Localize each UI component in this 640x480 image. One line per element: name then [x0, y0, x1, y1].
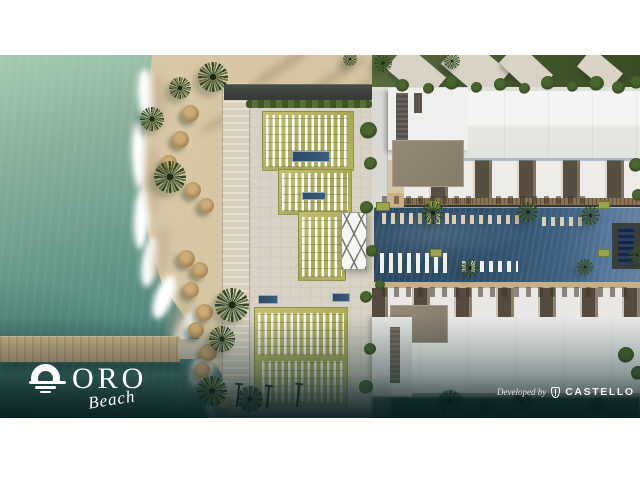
deck-loungers: [496, 196, 588, 204]
beach-umbrella: [199, 198, 214, 213]
shrub: [567, 81, 578, 92]
beach-umbrella: [183, 282, 199, 298]
shrub: [364, 157, 377, 170]
shrub: [360, 201, 373, 214]
shrub: [631, 366, 640, 380]
pool-green-mat: [598, 201, 610, 209]
pool-green-mat: [598, 249, 610, 257]
shrub: [541, 76, 555, 90]
palm-tree: [581, 206, 600, 225]
palm-tree: [461, 259, 479, 277]
palm-tree: [518, 202, 538, 222]
beach-umbrella: [192, 262, 208, 278]
shrub: [471, 82, 482, 93]
beach-umbrella: [185, 182, 201, 198]
plunge-pool: [258, 295, 278, 304]
pool-green-mat: [430, 249, 442, 257]
oro-beach-logo: ORO Beach: [28, 360, 198, 416]
canopy-truss: [342, 213, 366, 269]
palm-tree: [169, 77, 191, 99]
pool-green-mat: [376, 202, 390, 211]
oro-sun-waves-icon: [28, 364, 68, 404]
wooden-pier: [0, 336, 180, 362]
palm-tree: [422, 202, 444, 224]
shrub: [629, 158, 640, 172]
shrub: [494, 78, 507, 91]
palm-tree: [577, 259, 593, 275]
shrub: [618, 347, 634, 363]
palm-tree: [438, 390, 462, 414]
shrub: [423, 83, 434, 94]
palm-tree: [197, 376, 227, 406]
shrub: [589, 76, 604, 91]
palm-tree: [215, 288, 249, 322]
shrub: [630, 76, 640, 89]
in-pool-loungers: [452, 215, 524, 224]
castello-crest-icon: [551, 387, 560, 398]
beach-boardwalk: [222, 83, 250, 418]
shrub: [612, 81, 625, 94]
sun-lounger-rows: [302, 217, 342, 277]
palm-tree: [629, 247, 640, 263]
aerial-render-scene: ORO Beach Developed by CASTELLO: [0, 55, 640, 418]
hedge-row: [246, 100, 372, 108]
bottom-letterbox: [0, 418, 640, 480]
event-canopy: [341, 212, 367, 270]
shrub: [366, 245, 378, 257]
palm-tree: [478, 398, 496, 416]
beach-umbrella: [196, 304, 213, 321]
palm-tree: [198, 62, 228, 92]
shrub: [396, 79, 409, 92]
beach-umbrella: [178, 250, 195, 267]
sun-lounger-rows: [258, 313, 344, 355]
beach-umbrella: [182, 105, 199, 122]
beach-umbrella: [172, 131, 189, 148]
top-letterbox: [0, 0, 640, 55]
palm-tree: [140, 107, 164, 131]
shrub: [445, 76, 459, 90]
developed-by-label: Developed by: [497, 387, 546, 397]
shrub: [360, 122, 377, 139]
tower-window-slot: [390, 327, 400, 383]
oro-beach-rendering: ORO Beach Developed by CASTELLO: [0, 0, 640, 480]
plunge-pool: [292, 151, 330, 162]
plunge-pool: [332, 293, 350, 302]
beach-umbrella: [188, 322, 204, 338]
shrub: [364, 343, 376, 355]
palm-tree: [237, 386, 263, 412]
shrub: [375, 280, 385, 290]
plunge-pool: [302, 192, 326, 200]
north-building-glass-edge: [440, 158, 640, 161]
north-building-west-wing: [372, 91, 388, 207]
in-pool-loungers: [542, 217, 586, 226]
tower-window-slot: [396, 93, 408, 143]
castello-wordmark: CASTELLO: [565, 386, 634, 398]
palm-tree: [154, 161, 186, 193]
shrub: [632, 189, 640, 201]
deck-loungers: [382, 287, 632, 297]
beach-pavilion-roof: [224, 84, 372, 100]
palm-tree: [209, 326, 235, 352]
palm-tree: [589, 398, 607, 416]
tower-window-slot: [414, 93, 422, 113]
north-building-taupe-roof: [392, 140, 464, 187]
shrub: [360, 291, 372, 303]
shrub: [519, 83, 530, 94]
developer-mark: Developed by CASTELLO: [497, 386, 635, 398]
